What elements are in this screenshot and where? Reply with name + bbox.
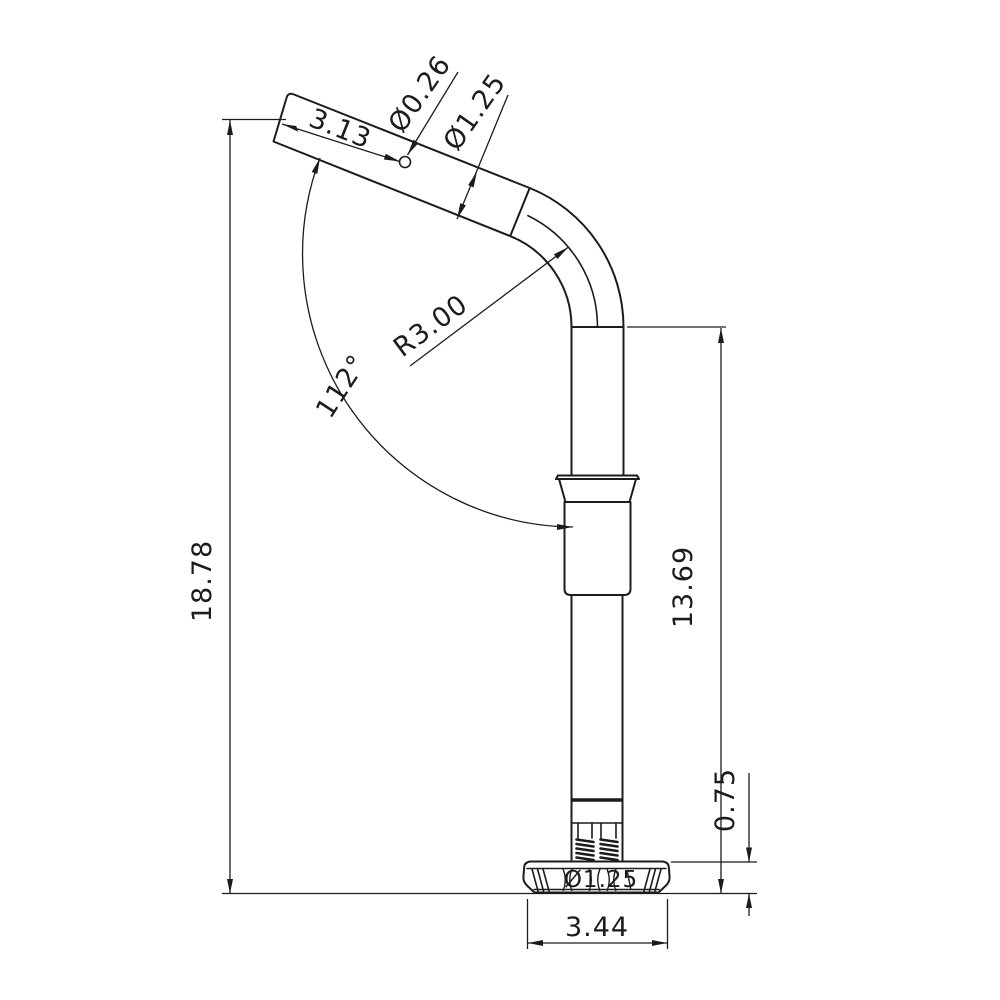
- bend-inner-edge: [510, 236, 571, 327]
- bend-angle-dim: 112°: [310, 349, 374, 424]
- slant-bend-joint: [510, 188, 530, 236]
- upright-height-dim: 13.69: [668, 546, 699, 628]
- bend-middle-edge: [528, 216, 598, 327]
- mount-base: Ø1.25: [523, 862, 669, 894]
- bend-radius-dim: R3.00: [388, 289, 474, 364]
- base-width-dim: 3.44: [565, 912, 629, 943]
- threaded-studs: [577, 823, 618, 860]
- overall-height-dim: 18.78: [187, 540, 218, 622]
- fixture-outline: Ø1.25: [274, 94, 670, 893]
- technical-drawing-canvas: Ø1.25 18.78 13.69 0.75: [0, 0, 1000, 1000]
- pivot-hole: [400, 157, 411, 168]
- lower-tube: [572, 595, 623, 862]
- base-height-dim: 0.75: [710, 768, 741, 832]
- bend-angle-dimension: 112°: [303, 158, 573, 530]
- collar: [556, 476, 639, 596]
- bend-radius-dimension: R3.00: [388, 247, 568, 366]
- base-width-dimension: 3.44: [528, 899, 668, 949]
- overall-height-dimension: 18.78: [187, 120, 286, 894]
- end-length-dim: 3.13: [305, 103, 376, 155]
- tube-diameter-dimension: Ø1.25: [438, 68, 513, 219]
